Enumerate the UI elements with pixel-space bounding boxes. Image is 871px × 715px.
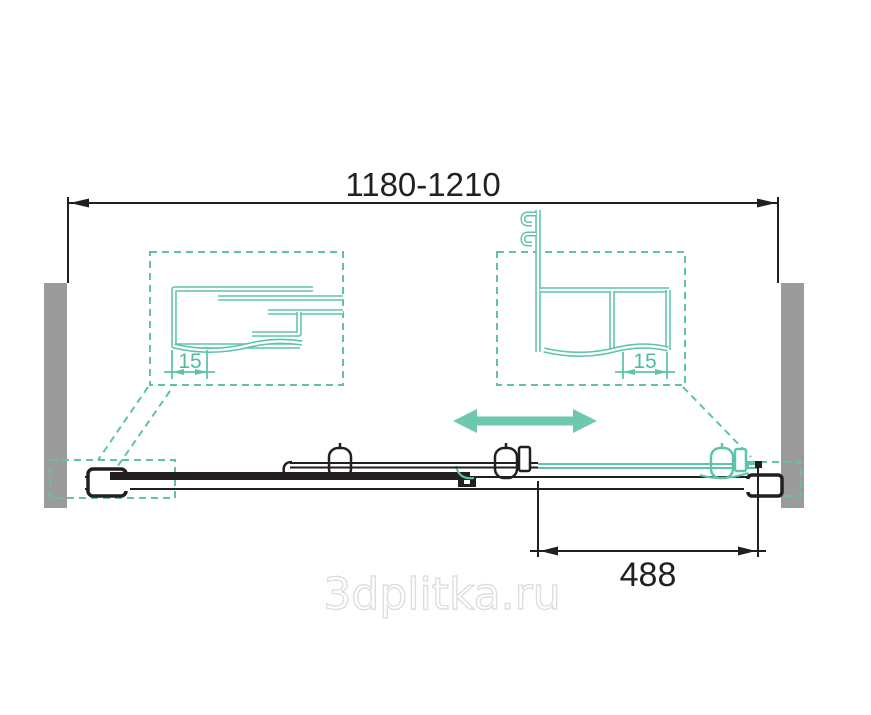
detail-callouts — [50, 387, 801, 498]
right-detail-view: 15 — [497, 210, 685, 385]
dim-arrowhead-right-icon — [738, 547, 756, 556]
roller-tab — [519, 447, 530, 471]
roller-tab-teal — [735, 449, 746, 471]
left-detail-view: 15 — [150, 252, 343, 385]
right-door-profile-section — [523, 210, 669, 354]
opening-width-dimension: 488 — [530, 468, 766, 594]
left-detail-gap-label: 15 — [178, 350, 201, 373]
right-leader-line — [683, 387, 751, 457]
dim-arrowhead-icon — [655, 369, 667, 375]
dim-arrowhead-left-icon — [540, 547, 558, 556]
right-detail-gap-label: 15 — [633, 350, 656, 373]
overall-width-dimension: 1180-1210 — [68, 166, 778, 283]
overall-width-label: 1180-1210 — [345, 166, 500, 203]
left-leader-line — [98, 387, 148, 460]
door-edge-marker — [755, 461, 762, 468]
dim-arrowhead-right-icon — [757, 199, 776, 208]
right-detail-dashed-box — [497, 252, 685, 385]
door-assembly — [85, 443, 782, 496]
dim-arrowhead-left-icon — [70, 199, 89, 208]
left-detail-gap-dimension: 15 — [164, 350, 215, 379]
opening-width-label: 488 — [620, 556, 677, 594]
sliding-door-closed-position — [538, 443, 757, 478]
left-wall-bar — [44, 283, 67, 508]
right-detail-gap-dimension: 15 — [615, 350, 675, 379]
fixed-panel — [110, 472, 470, 480]
shower-door-technical-drawing: 1180-1210 15 — [0, 0, 871, 715]
shower-door-drawing-page: 1180-1210 15 — [0, 0, 871, 715]
left-wall-profile-section — [174, 289, 343, 350]
slide-direction-arrow-icon — [453, 409, 597, 433]
